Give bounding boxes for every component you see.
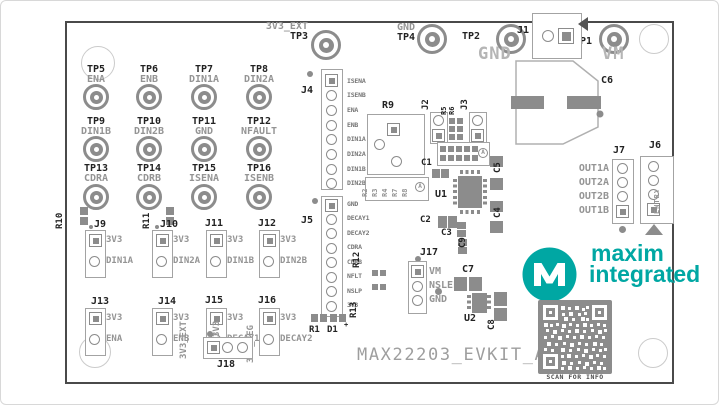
resistor-pad [449,118,455,124]
jumper-pin [263,256,274,267]
capacitor-pad [432,169,440,178]
component-ref-r1: R1 [309,326,320,335]
component-ref-d1: D1 [327,326,338,335]
testpoint [191,84,217,110]
jumper-top-label: 3V3 [227,314,243,323]
j18-pin-label: 3V3_EXT [180,321,189,359]
j17-pin [412,281,423,292]
j17-pin-label: VM [429,267,441,277]
capacitor-pad [441,169,449,178]
jumper-top-label: 3V3 [106,236,122,245]
header-ref-j7: J7 [613,146,625,156]
j7-pin-label: OUT1A [569,164,609,174]
j3-pin-square [471,129,484,142]
component-ref-u1: U1 [435,190,447,200]
j4-pin [326,120,337,131]
j2-pin-square [432,129,445,142]
testpoint [191,136,217,162]
header-ref-j17: J17 [420,248,438,258]
pin1-arrow-icon [578,17,588,31]
testpoint [246,136,272,162]
capacitor-pad [438,216,447,228]
assembly-mark: A [415,182,425,192]
socket-pad [456,155,462,161]
j1-pin-square [558,28,574,44]
testpoint [246,84,272,110]
u1-pads-bottom [460,210,481,214]
resistor-pad [449,134,455,140]
component-ref-r6: R6 [449,107,456,115]
j18-pin1-square [207,341,220,354]
resistor-pad [380,270,386,276]
socket-pad [472,155,478,161]
testpoint [83,136,109,162]
jumper-bottom-label: DIN1A [106,257,133,266]
j4-pin-label: DIN2B [347,180,366,187]
u1-pads-right [483,179,487,206]
component-ref-c5: C5 [494,162,503,173]
j17-pin [412,295,423,306]
jumper-bottom-label: DECAY2 [280,335,313,344]
d1-polarity-mark: + [344,322,348,329]
via-dot [89,225,93,229]
pin1-arrow-icon [645,224,663,235]
j4-pin [326,105,337,116]
capacitor-pad [490,178,503,190]
j5-pin1-square [325,199,338,212]
testpoint-ref-tp2: TP2 [462,32,480,42]
j5-pin [326,228,337,239]
r9-pin [374,139,385,150]
maxim-logo-icon [521,246,578,303]
via-dot [312,198,318,204]
component-ref-u2: U2 [464,314,476,324]
jumper-top-label: 3V3 [227,236,243,245]
jumper-ref-j14: J14 [158,297,176,307]
j4-pin [326,134,337,145]
j4-pin-label: DIN1A [347,136,366,143]
jumper-pin [263,334,274,345]
u2-pads-right [487,295,491,311]
component-ref-r5: R5 [441,107,448,115]
component-ref-r4: R4 [382,189,389,197]
j5-pin-label: DECAY1 [347,215,369,222]
jumper-top-label: 3V3 [106,314,122,323]
ic-u1-body [458,176,482,208]
capacitor-pad [457,230,466,237]
testpoint-tp3 [311,30,341,60]
capacitor-pad [448,216,457,228]
j7-pin [617,191,628,202]
j18-pin-label: 3V3 [213,321,222,337]
jumper-pin [210,256,221,267]
j4-pin-label: ISENB [347,92,366,99]
capacitor-pad [458,247,467,254]
component-ref-r7: R7 [392,189,399,197]
resistor-pad [80,217,88,225]
testpoint [246,184,272,210]
j5-pin-label: GND [347,201,358,208]
j7-pin [617,163,628,174]
testpoint-label-tp3: 3V3_EXT TP3 [238,22,308,42]
socket-pad [440,146,446,152]
via-dot [155,225,159,229]
j4-pin [326,149,337,160]
capacitor-c6-outline [511,56,606,151]
jumper-ref-j16: J16 [258,296,276,306]
header-ref-j1: J1 [517,26,529,36]
header-ref-j2: J2 [422,99,431,110]
testpoint [136,184,162,210]
capacitor-pad [490,221,503,233]
testpoint [136,84,162,110]
rail-label-gnd: GND [478,46,512,63]
testpoint [191,184,217,210]
component-ref-c8: C8 [488,319,497,330]
resistor-pad [80,207,88,215]
ic-u2-body [472,293,487,313]
resistor-pad [311,314,318,322]
j6-pin [648,161,659,172]
u2-pads-left [467,295,471,311]
j4-pin [326,178,337,189]
testpoint-label: TP8 DIN2A [227,65,291,85]
mounting-hole [638,338,668,368]
resistor-pad [320,314,327,322]
jumper-pin-square [156,234,169,247]
j5-pin [326,286,337,297]
jumper-top-label: 3V3 [173,236,189,245]
j6-label: ENTRY [654,188,661,214]
j6-pin [648,175,659,186]
header-ref-j6: J6 [649,141,661,151]
j7-pin-label: OUT1B [569,206,609,216]
component-ref-r10: R10 [56,213,65,229]
j7-pin-square [616,205,629,218]
j5-pin-label: NSLP [347,288,362,295]
pcb-assembly-drawing: 3V3_EXT TP3 GND TP4 TP2 GND TP1 VM J1 C6… [0,0,719,405]
u1-pads-left [453,179,457,206]
j5-pin [326,257,337,268]
j2-pin [433,115,444,126]
testpoint [83,84,109,110]
j18-pin [237,342,248,353]
jumper-top-label: 3V3 [280,314,296,323]
capacitor-pad [454,277,467,291]
jumper-pin [89,334,100,345]
socket-pad [448,146,454,152]
resistor-pad [457,134,463,140]
jumper-ref-j13: J13 [91,297,109,307]
jumper-ref-j9: J9 [94,220,106,230]
component-ref-c2: C2 [420,216,431,225]
testpoint-label-tp4: GND TP4 [349,23,415,43]
via-dot [307,71,313,77]
mounting-hole [639,24,669,54]
j5-pin [326,301,337,312]
jumper-pin-square [210,234,223,247]
component-ref-r13: R13 [350,302,359,318]
j4-pin-label: DIN2A [347,151,366,158]
via-dot [619,226,626,233]
component-ref-c4: C4 [494,207,503,218]
testpoint-ref: TP4 [349,33,415,43]
r9-pin [391,156,402,167]
capacitor-pad [469,277,482,291]
jumper-ref-j12: J12 [258,219,276,229]
r9-pin-square [387,123,400,136]
socket-pad [456,146,462,152]
component-ref-r3: R3 [372,189,379,197]
j5-pin [326,272,337,283]
component-ref-c6: C6 [601,76,613,86]
logo-tm-mark: ™ [668,280,676,288]
testpoint-tp4 [417,24,447,54]
jumper-bottom-label: DIN2A [173,257,200,266]
j4-pin-label: ENA [347,107,358,114]
jumper-pin-square [89,234,102,247]
header-ref-j18: J18 [217,360,235,370]
jumper-bottom-label: DIN1B [227,257,254,266]
component-ref-r12: R12 [353,252,362,268]
resistor-pad [457,118,463,124]
testpoint-label: TP16 ISENB [227,164,291,184]
header-j1 [532,13,582,59]
j4-pin [326,90,337,101]
resistor-pad [372,284,378,290]
socket-pad [440,155,446,161]
j5-pin [326,214,337,225]
logo-word-integrated: integrated [589,263,700,286]
component-ref-c7: C7 [462,265,474,275]
socket-pad [464,146,470,152]
resistor-pad [449,126,455,132]
jumper-pin-square [89,312,102,325]
resistor-pad [372,270,378,276]
testpoint-ref: TP3 [238,32,308,42]
j5-pin-label: CDRA [347,244,362,251]
j17-pin-label: GND [429,295,447,305]
board-title: MAX22203_EVKIT_A [357,345,546,365]
testpoint-label: TP12 NFAULT [227,117,291,137]
u1-pads-top [460,170,481,174]
j7-pin-label: OUT2B [569,192,609,202]
jumper-top-label: 3V3 [280,236,296,245]
capacitor-pad [494,292,507,306]
jumper-pin [89,256,100,267]
component-ref-c1: C1 [421,159,432,168]
capacitor-pad [457,222,466,229]
j3-pin [472,115,483,126]
j5-pin [326,243,337,254]
jumper-pin-square [263,312,276,325]
qr-code [538,300,612,374]
j18-pin [222,342,233,353]
j4-pin1-square [325,74,338,87]
component-ref-r8: R8 [402,189,409,197]
led-pad [330,314,337,322]
j7-pin [617,177,628,188]
j17-pin1-square [411,265,424,278]
jumper-pin-square [263,234,276,247]
header-ref-j4: J4 [301,86,313,96]
jumper-bottom-label: ENA [106,335,122,344]
component-ref-r9: R9 [382,101,394,111]
resistor-pad [166,207,174,215]
assembly-mark: A [478,148,488,158]
socket-pad [464,155,470,161]
testpoint-signal: ISENB [227,174,291,184]
jumper-ref-j10: J10 [160,220,178,230]
resistor-pad [457,126,463,132]
via-dot [435,288,442,295]
jumper-ref-j15: J15 [205,296,223,306]
qr-pattern-icon [538,300,612,374]
testpoint [136,136,162,162]
j5-pin-label: DECAY2 [347,230,369,237]
j4-pin [326,164,337,175]
j5-pin-label: NFLT [347,273,362,280]
jumper-bottom-label: DIN2B [280,257,307,266]
header-ref-j3: J3 [461,99,470,110]
jumper-pin [156,334,167,345]
component-ref-r2: R2 [362,189,369,197]
component-ref-c3: C3 [441,229,452,238]
qr-caption: SCAN FOR INFO [528,373,622,381]
resistor-pad [380,284,386,290]
jumper-pin [156,256,167,267]
j1-pin-round [542,30,554,42]
j7-pin-label: OUT2A [569,178,609,188]
component-ref-c9: C9 [459,237,468,248]
jumper-pin-square [156,312,169,325]
j4-pin-label: ISENA [347,78,366,85]
header-ref-j5: J5 [301,216,313,226]
jumper-ref-j11: J11 [205,219,223,229]
j4-pin-label: ENB [347,122,358,129]
socket-pad [448,155,454,161]
j4-pin-label: DIN1B [347,166,366,173]
component-ref-r11: R11 [143,213,152,229]
